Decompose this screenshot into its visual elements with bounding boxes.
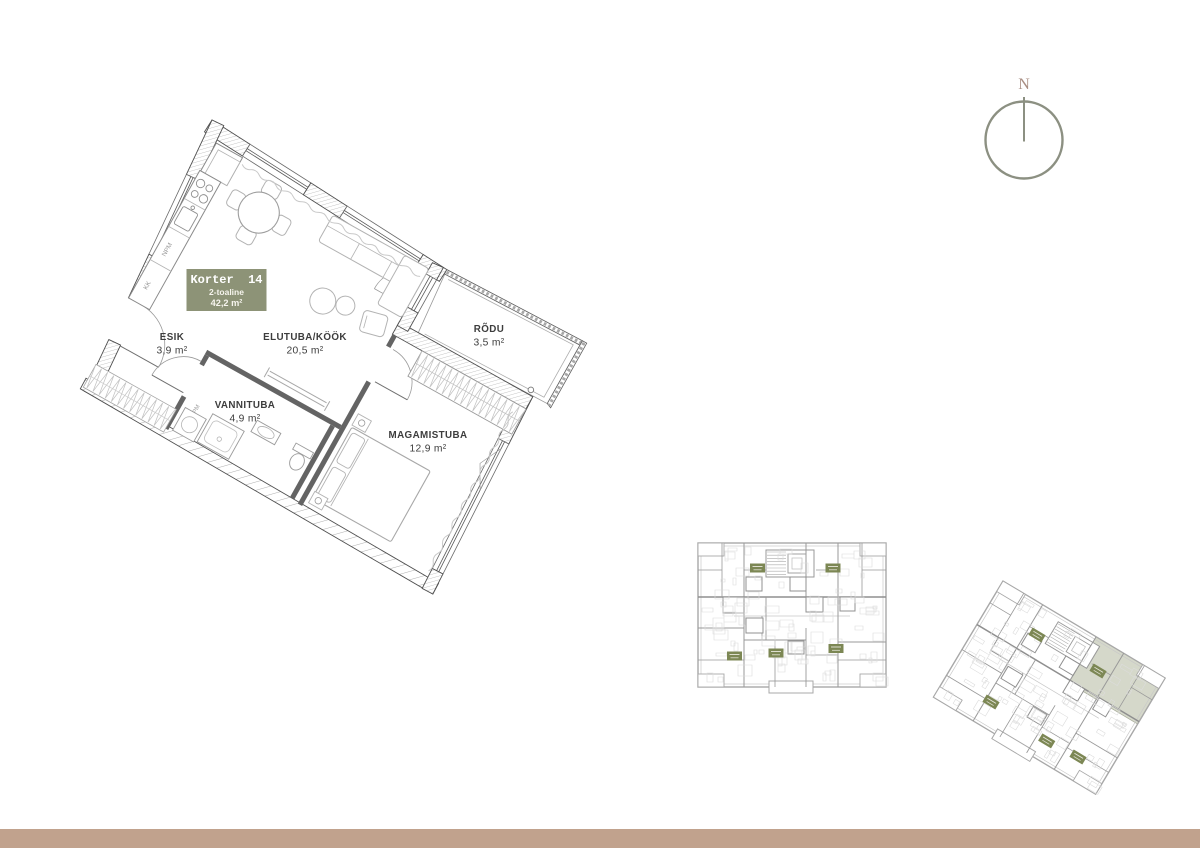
svg-text:VANNITUBA: VANNITUBA bbox=[215, 400, 276, 411]
svg-text:2-toaline: 2-toaline bbox=[209, 287, 244, 297]
svg-text:N: N bbox=[1018, 76, 1030, 93]
svg-text:20,5 m²: 20,5 m² bbox=[286, 346, 323, 357]
svg-text:RÕDU: RÕDU bbox=[474, 324, 504, 335]
svg-text:3,5 m²: 3,5 m² bbox=[474, 338, 505, 349]
svg-text:Korter 14: Korter 14 bbox=[190, 273, 262, 287]
svg-text:ELUTUBA/KÖÖK: ELUTUBA/KÖÖK bbox=[263, 332, 347, 343]
svg-text:3,9 m²: 3,9 m² bbox=[157, 346, 188, 357]
svg-text:MAGAMISTUBA: MAGAMISTUBA bbox=[389, 430, 468, 441]
svg-text:ESIK: ESIK bbox=[160, 332, 184, 343]
svg-text:42,2 m²: 42,2 m² bbox=[211, 298, 243, 308]
svg-text:12,9 m²: 12,9 m² bbox=[409, 444, 446, 455]
svg-text:4,9 m²: 4,9 m² bbox=[230, 414, 261, 425]
